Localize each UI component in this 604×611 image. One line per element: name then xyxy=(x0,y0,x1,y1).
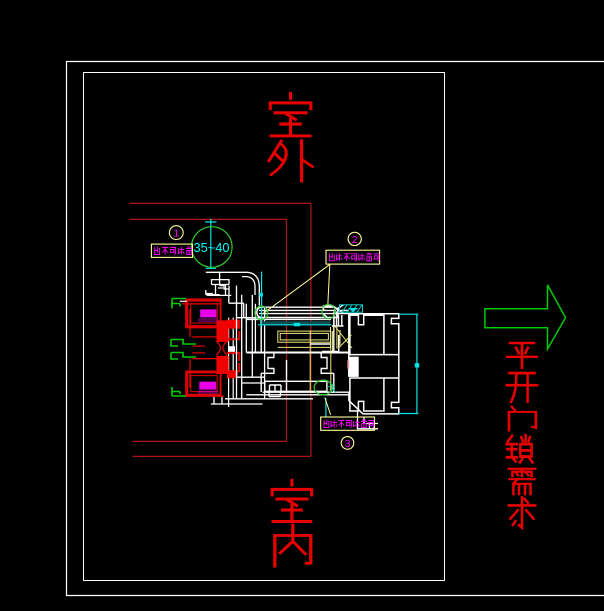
svg-text:1: 1 xyxy=(173,227,179,239)
svg-text:3: 3 xyxy=(345,438,351,450)
svg-text:2: 2 xyxy=(352,234,358,246)
svg-text:35~40: 35~40 xyxy=(194,240,230,255)
